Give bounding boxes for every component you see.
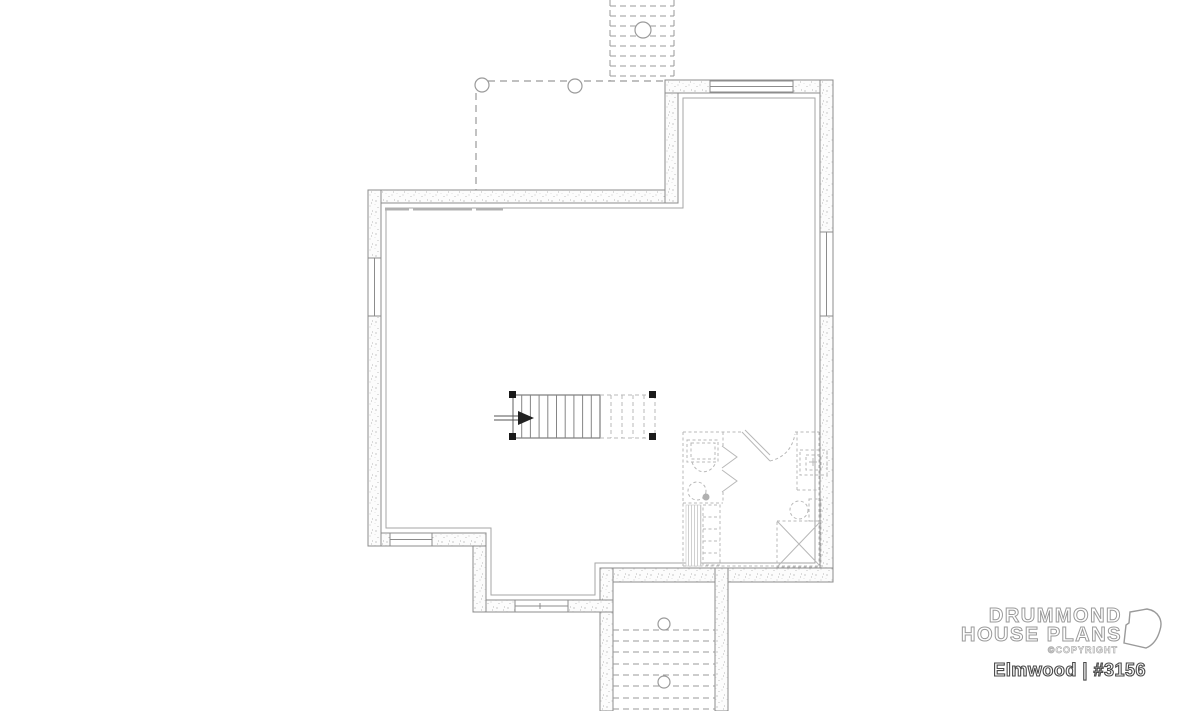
stair-post <box>509 433 516 440</box>
bottom-stair-treads <box>613 630 715 709</box>
center-staircase <box>494 391 656 440</box>
window-bumpout <box>515 600 568 612</box>
window-top-right <box>710 81 793 92</box>
windows <box>368 81 833 612</box>
wall-right <box>820 80 833 582</box>
shower <box>777 521 821 567</box>
porch-outline <box>475 78 678 190</box>
wall-top-left <box>368 190 665 203</box>
bathroom-partition <box>797 432 819 490</box>
deck-post <box>635 22 651 38</box>
deck-stairs-top <box>610 0 674 81</box>
window-bottom-left <box>390 533 432 546</box>
folding-door-chevrons <box>722 446 737 492</box>
wall-stairwell-left <box>600 568 613 711</box>
brand-d-icon <box>1124 609 1161 648</box>
window-right <box>820 232 833 316</box>
future-bathroom <box>683 430 827 567</box>
porch-post <box>475 78 489 92</box>
stair-post <box>649 433 656 440</box>
stair-post <box>649 391 656 398</box>
wall-step-vertical <box>665 80 678 203</box>
wall-bumpout-left <box>473 535 486 612</box>
floor-drain <box>703 494 710 501</box>
stair-post <box>509 391 516 398</box>
wall-stairwell-right <box>715 568 728 711</box>
stair-post-circle <box>658 618 670 630</box>
brand-logo: DRUMMOND HOUSE PLANS ©COPYRIGHT Elmwood … <box>961 605 1161 680</box>
interior-face-lines <box>385 98 815 595</box>
sill-segment <box>385 208 409 211</box>
brand-copyright: ©COPYRIGHT <box>1048 645 1118 655</box>
deck-stair-treads <box>610 6 674 76</box>
floor-plan-page: DRUMMOND HOUSE PLANS ©COPYRIGHT Elmwood … <box>0 0 1200 711</box>
stair-run-dashed <box>600 395 655 438</box>
plan-title: Elmwood | #3156 <box>993 660 1146 680</box>
toilet <box>688 482 710 501</box>
floor-plan-canvas: DRUMMOND HOUSE PLANS ©COPYRIGHT Elmwood … <box>0 0 1200 711</box>
sill-segment <box>476 208 503 211</box>
porch-post <box>568 79 582 93</box>
vanity-sink <box>687 440 718 472</box>
toilet <box>790 499 821 521</box>
hatched-wall-strip <box>686 505 701 566</box>
exterior-stairs-bottom <box>613 618 715 709</box>
linen-closet <box>703 505 720 565</box>
stair-post-circle <box>658 676 670 688</box>
window-left <box>368 258 381 316</box>
interior-outline <box>386 98 815 595</box>
deck-stair-sides <box>610 0 674 81</box>
wall-left <box>368 190 381 546</box>
brand-name-line2: HOUSE PLANS <box>961 624 1122 646</box>
angled-door-wall <box>742 430 795 461</box>
sill-segment <box>413 208 472 211</box>
